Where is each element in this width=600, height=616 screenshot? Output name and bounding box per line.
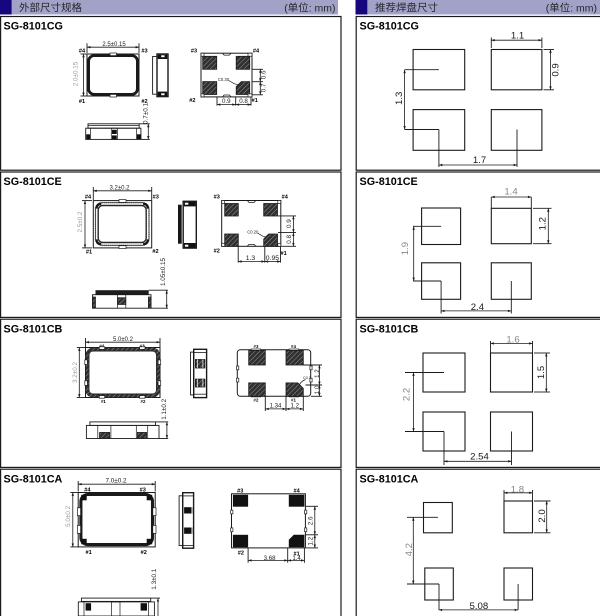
svg-text:5.08: 5.08 — [470, 601, 489, 612]
svg-text:#3: #3 — [153, 194, 159, 200]
svg-text:SG-8101CA: SG-8101CA — [4, 473, 63, 485]
svg-text:1.8: 1.8 — [511, 484, 524, 495]
svg-text:#3: #3 — [191, 49, 197, 55]
svg-text:1.4: 1.4 — [504, 187, 518, 198]
svg-text:#3: #3 — [214, 195, 220, 201]
svg-text:1.3: 1.3 — [246, 255, 256, 262]
svg-text:#4: #4 — [293, 489, 300, 495]
svg-text:SG-8101CA: SG-8101CA — [360, 473, 419, 485]
svg-text:#2: #2 — [214, 249, 220, 255]
svg-text:2.5±0.2: 2.5±0.2 — [77, 211, 84, 232]
svg-text:1.2: 1.2 — [314, 369, 321, 378]
svg-text:SG-8101CG: SG-8101CG — [360, 21, 419, 33]
svg-text:1.2: 1.2 — [291, 402, 300, 409]
svg-text:2.4: 2.4 — [471, 302, 485, 313]
svg-text:3.2±0.2: 3.2±0.2 — [72, 362, 79, 383]
svg-text:2.0±0.15: 2.0±0.15 — [72, 61, 79, 86]
svg-text:2.54: 2.54 — [470, 452, 489, 463]
svg-text:0.8: 0.8 — [239, 98, 248, 105]
svg-text:#2: #2 — [152, 249, 158, 255]
svg-text:1.1: 1.1 — [511, 30, 524, 41]
svg-text:#2: #2 — [141, 399, 146, 404]
svg-text:#3: #3 — [141, 49, 147, 55]
svg-text:0.6: 0.6 — [261, 70, 268, 79]
svg-text:(: ( — [284, 2, 288, 14]
svg-text:0.9: 0.9 — [286, 219, 293, 228]
svg-text:1.3±0.1: 1.3±0.1 — [151, 568, 158, 589]
svg-text:#2: #2 — [254, 398, 259, 403]
svg-text:#3: #3 — [237, 489, 243, 495]
svg-text:1.5: 1.5 — [536, 366, 547, 379]
svg-text:#4: #4 — [291, 344, 296, 349]
svg-text:0.7±0.1: 0.7±0.1 — [143, 103, 150, 124]
svg-text:SG-8101CB: SG-8101CB — [4, 323, 63, 335]
svg-text:1.4: 1.4 — [292, 555, 301, 562]
svg-text:1.3: 1.3 — [394, 92, 405, 105]
svg-text:(: ( — [546, 2, 550, 14]
svg-text:SG-8101CE: SG-8101CE — [4, 176, 62, 188]
svg-text:#4: #4 — [85, 195, 92, 201]
svg-text:0.95: 0.95 — [266, 255, 279, 262]
svg-text:1.05±0.15: 1.05±0.15 — [160, 258, 167, 286]
svg-text:1.34: 1.34 — [270, 402, 282, 409]
svg-text:1.9: 1.9 — [400, 242, 411, 255]
svg-text:0.7: 0.7 — [261, 83, 268, 92]
svg-text:1.1±0.2: 1.1±0.2 — [161, 398, 168, 419]
svg-text:#1: #1 — [252, 98, 258, 104]
svg-text:2.0: 2.0 — [537, 509, 548, 522]
svg-text:#1: #1 — [79, 99, 85, 105]
svg-text:2.6: 2.6 — [307, 516, 314, 525]
svg-text:#2: #2 — [141, 550, 147, 556]
svg-text:#1: #1 — [101, 399, 106, 404]
svg-text:4.2: 4.2 — [404, 543, 415, 556]
svg-text:#4: #4 — [282, 194, 289, 200]
svg-text:#3: #3 — [254, 344, 259, 349]
svg-text:0.9: 0.9 — [222, 98, 231, 105]
svg-text:1.2: 1.2 — [537, 217, 548, 230]
svg-text:3.68: 3.68 — [264, 555, 276, 562]
svg-text:#2: #2 — [238, 551, 244, 557]
svg-text:2.2: 2.2 — [402, 388, 413, 401]
svg-text:SG-8101CG: SG-8101CG — [4, 21, 63, 33]
svg-text:: mm): : mm) — [309, 2, 336, 14]
svg-text:#1: #1 — [85, 550, 91, 556]
svg-text:#4: #4 — [253, 49, 260, 55]
svg-text:1.2: 1.2 — [307, 536, 314, 545]
svg-text:C0.20: C0.20 — [247, 229, 259, 234]
svg-text:5.0±0.2: 5.0±0.2 — [65, 505, 72, 526]
svg-text:#2: #2 — [189, 98, 195, 104]
svg-text:C0.30: C0.30 — [218, 77, 230, 82]
svg-text:0.8: 0.8 — [286, 235, 293, 244]
svg-text:C0.3: C0.3 — [303, 376, 311, 380]
svg-text:SG-8101CB: SG-8101CB — [360, 323, 419, 335]
svg-text:#1: #1 — [86, 249, 92, 255]
svg-text:1.7: 1.7 — [473, 155, 486, 166]
svg-text:0.9: 0.9 — [551, 63, 562, 76]
svg-text:1.6: 1.6 — [506, 335, 519, 346]
svg-text:: mm): : mm) — [570, 2, 597, 14]
svg-text:1.0: 1.0 — [314, 385, 321, 394]
svg-text:#1: #1 — [280, 251, 286, 257]
svg-text:SG-8101CE: SG-8101CE — [360, 176, 418, 188]
svg-text:7.0±0.2: 7.0±0.2 — [106, 477, 127, 484]
